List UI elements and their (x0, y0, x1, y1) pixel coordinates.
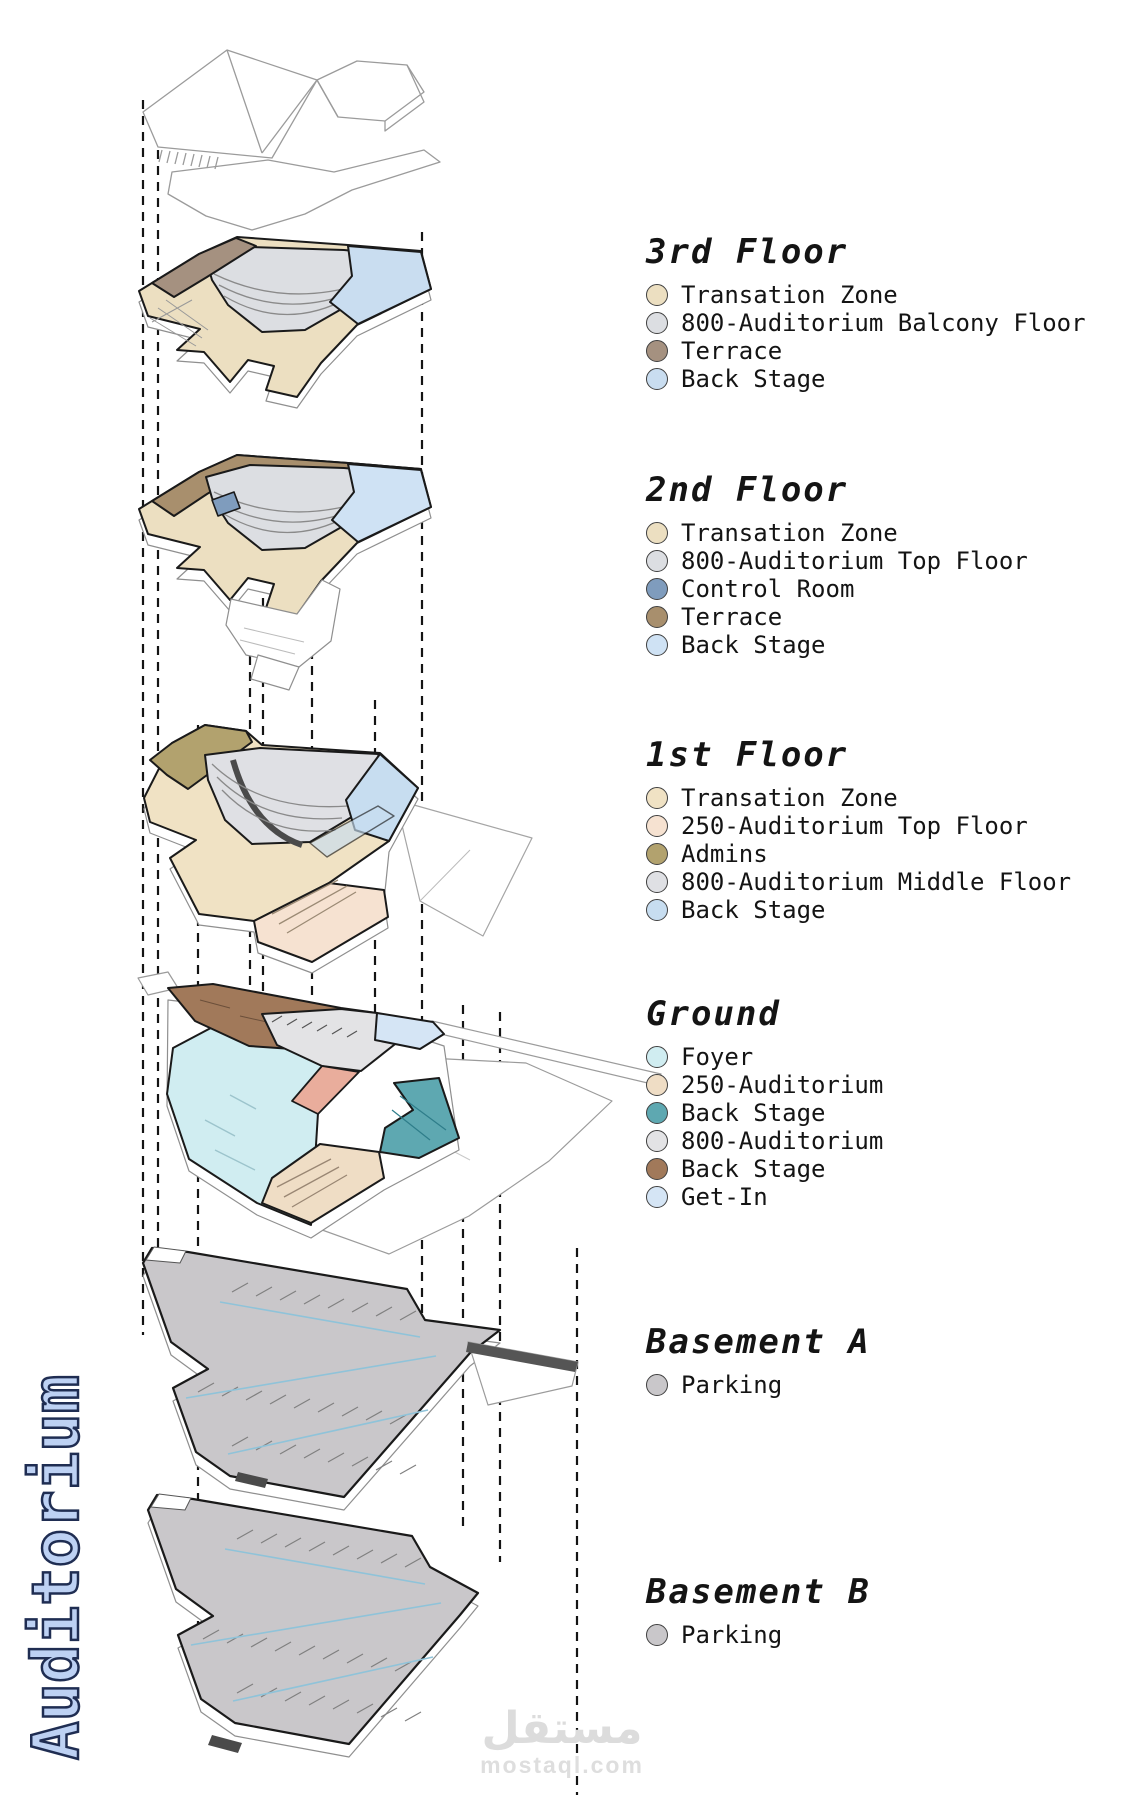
legend-item-label: Admins (681, 840, 768, 868)
legend-3rd-floor: 3rd Floor Transation Zone800-Auditorium … (646, 232, 1116, 393)
legend-item: Control Room (646, 575, 1116, 603)
legend-color-swatch (646, 871, 668, 893)
legend-item-label: 800-Auditorium Middle Floor (681, 868, 1071, 896)
watermark: مستقل mostaql.com (462, 1706, 662, 1778)
legend-item: Back Stage (646, 1099, 1116, 1127)
basement-b-dark-block (208, 1735, 242, 1753)
legend-item: Admins (646, 840, 1116, 868)
floor3-plan (139, 237, 431, 408)
basement-b-plan (148, 1494, 478, 1757)
legend-title-2nd-floor: 2nd Floor (646, 470, 1116, 510)
basement-a-plan (143, 1247, 578, 1510)
legend-item: Foyer (646, 1043, 1116, 1071)
legend-item-label: Terrace (681, 603, 782, 631)
basement-b-entry-rooms (151, 1494, 191, 1510)
legend-item: 800-Auditorium (646, 1127, 1116, 1155)
poster-canvas: 3rd Floor Transation Zone800-Auditorium … (0, 0, 1123, 1820)
basement-b-zone-parking (148, 1495, 478, 1744)
legend-color-swatch (646, 899, 668, 921)
legend-item: Terrace (646, 337, 1116, 365)
legend-item-label: Terrace (681, 337, 782, 365)
legend-items-1st-floor: Transation Zone250-Auditorium Top FloorA… (646, 784, 1116, 924)
legend-item: Get-In (646, 1183, 1116, 1211)
legend-title-1st-floor: 1st Floor (646, 735, 1116, 775)
legend-items-2nd-floor: Transation Zone800-Auditorium Top FloorC… (646, 519, 1116, 659)
legend-item: Parking (646, 1621, 1116, 1649)
legend-item: Transation Zone (646, 281, 1116, 309)
basement-a-entry-rooms (146, 1247, 186, 1263)
legend-item: Back Stage (646, 365, 1116, 393)
roof-main-facet (143, 50, 317, 158)
legend-color-swatch (646, 1102, 668, 1124)
legend-item-label: 800-Auditorium (681, 1127, 883, 1155)
legend-color-swatch (646, 578, 668, 600)
legend-color-swatch (646, 606, 668, 628)
legend-color-swatch (646, 550, 668, 572)
legend-item: Back Stage (646, 896, 1116, 924)
legend-color-swatch (646, 284, 668, 306)
legend-item-label: Control Room (681, 575, 854, 603)
legend-ground: Ground Foyer250-AuditoriumBack Stage800-… (646, 994, 1116, 1211)
legend-item-label: Back Stage (681, 631, 826, 659)
legend-title-basement-a: Basement A (646, 1322, 1116, 1362)
legend-items-ground: Foyer250-AuditoriumBack Stage800-Auditor… (646, 1043, 1116, 1211)
legend-color-swatch (646, 1186, 668, 1208)
legend-basement-b: Basement B Parking (646, 1572, 1116, 1649)
legend-item-label: Transation Zone (681, 519, 898, 547)
legend-color-swatch (646, 1074, 668, 1096)
legend-item-label: 250-Auditorium Top Floor (681, 812, 1028, 840)
legend-item-label: Foyer (681, 1043, 753, 1071)
legend-item-label: Transation Zone (681, 281, 898, 309)
legend-title-ground: Ground (646, 994, 1116, 1034)
legend-item-label: Parking (681, 1371, 782, 1399)
legend-item: Parking (646, 1371, 1116, 1399)
ground-plan (138, 972, 661, 1254)
legend-color-swatch (646, 312, 668, 334)
legend-item: 800-Auditorium Top Floor (646, 547, 1116, 575)
legend-item: Back Stage (646, 1155, 1116, 1183)
legend-item-label: Back Stage (681, 896, 826, 924)
roof-plan (143, 50, 440, 230)
legend-title-basement-b: Basement B (646, 1572, 1116, 1612)
legend-items-basement-b: Parking (646, 1621, 1116, 1649)
legend-color-swatch (646, 522, 668, 544)
legend-2nd-floor: 2nd Floor Transation Zone800-Auditorium … (646, 470, 1116, 659)
legend-item: 250-Auditorium Top Floor (646, 812, 1116, 840)
legend-item-label: Back Stage (681, 1099, 826, 1127)
legend-item: Transation Zone (646, 519, 1116, 547)
legend-color-swatch (646, 634, 668, 656)
legend-item: 250-Auditorium (646, 1071, 1116, 1099)
legend-item-label: 800-Auditorium Top Floor (681, 547, 1028, 575)
legend-item: 800-Auditorium Middle Floor (646, 868, 1116, 896)
legend-color-swatch (646, 1624, 668, 1646)
legend-basement-a: Basement A Parking (646, 1322, 1116, 1399)
legend-item-label: Parking (681, 1621, 782, 1649)
watermark-arabic-logo: مستقل (462, 1706, 662, 1752)
legend-item-label: 250-Auditorium (681, 1071, 883, 1099)
legend-item-label: Back Stage (681, 1155, 826, 1183)
legend-item: 800-Auditorium Balcony Floor (646, 309, 1116, 337)
legend-items-basement-a: Parking (646, 1371, 1116, 1399)
legend-1st-floor: 1st Floor Transation Zone250-Auditorium … (646, 735, 1116, 924)
legend-color-swatch (646, 843, 668, 865)
legend-color-swatch (646, 1158, 668, 1180)
legend-color-swatch (646, 787, 668, 809)
legend-color-swatch (646, 1130, 668, 1152)
legend-color-swatch (646, 368, 668, 390)
legend-title-3rd-floor: 3rd Floor (646, 232, 1116, 272)
legend-color-swatch (646, 340, 668, 362)
watermark-domain: mostaql.com (462, 1752, 662, 1778)
legend-item: Transation Zone (646, 784, 1116, 812)
legend-item-label: Transation Zone (681, 784, 898, 812)
legend-item-label: 800-Auditorium Balcony Floor (681, 309, 1086, 337)
roof-edge-hatch (159, 150, 218, 169)
legend-item: Terrace (646, 603, 1116, 631)
floor2-plan (139, 455, 431, 690)
roof-annex-facet (317, 61, 424, 121)
legend-color-swatch (646, 1374, 668, 1396)
floor1-plan (144, 725, 532, 973)
project-title-vertical: Auditorium (20, 1352, 82, 1760)
floor1-white-annex (396, 800, 532, 936)
legend-item: Back Stage (646, 631, 1116, 659)
legend-color-swatch (646, 815, 668, 837)
legend-item-label: Get-In (681, 1183, 768, 1211)
legend-item-label: Back Stage (681, 365, 826, 393)
legend-items-3rd-floor: Transation Zone800-Auditorium Balcony Fl… (646, 281, 1116, 393)
legend-color-swatch (646, 1046, 668, 1068)
